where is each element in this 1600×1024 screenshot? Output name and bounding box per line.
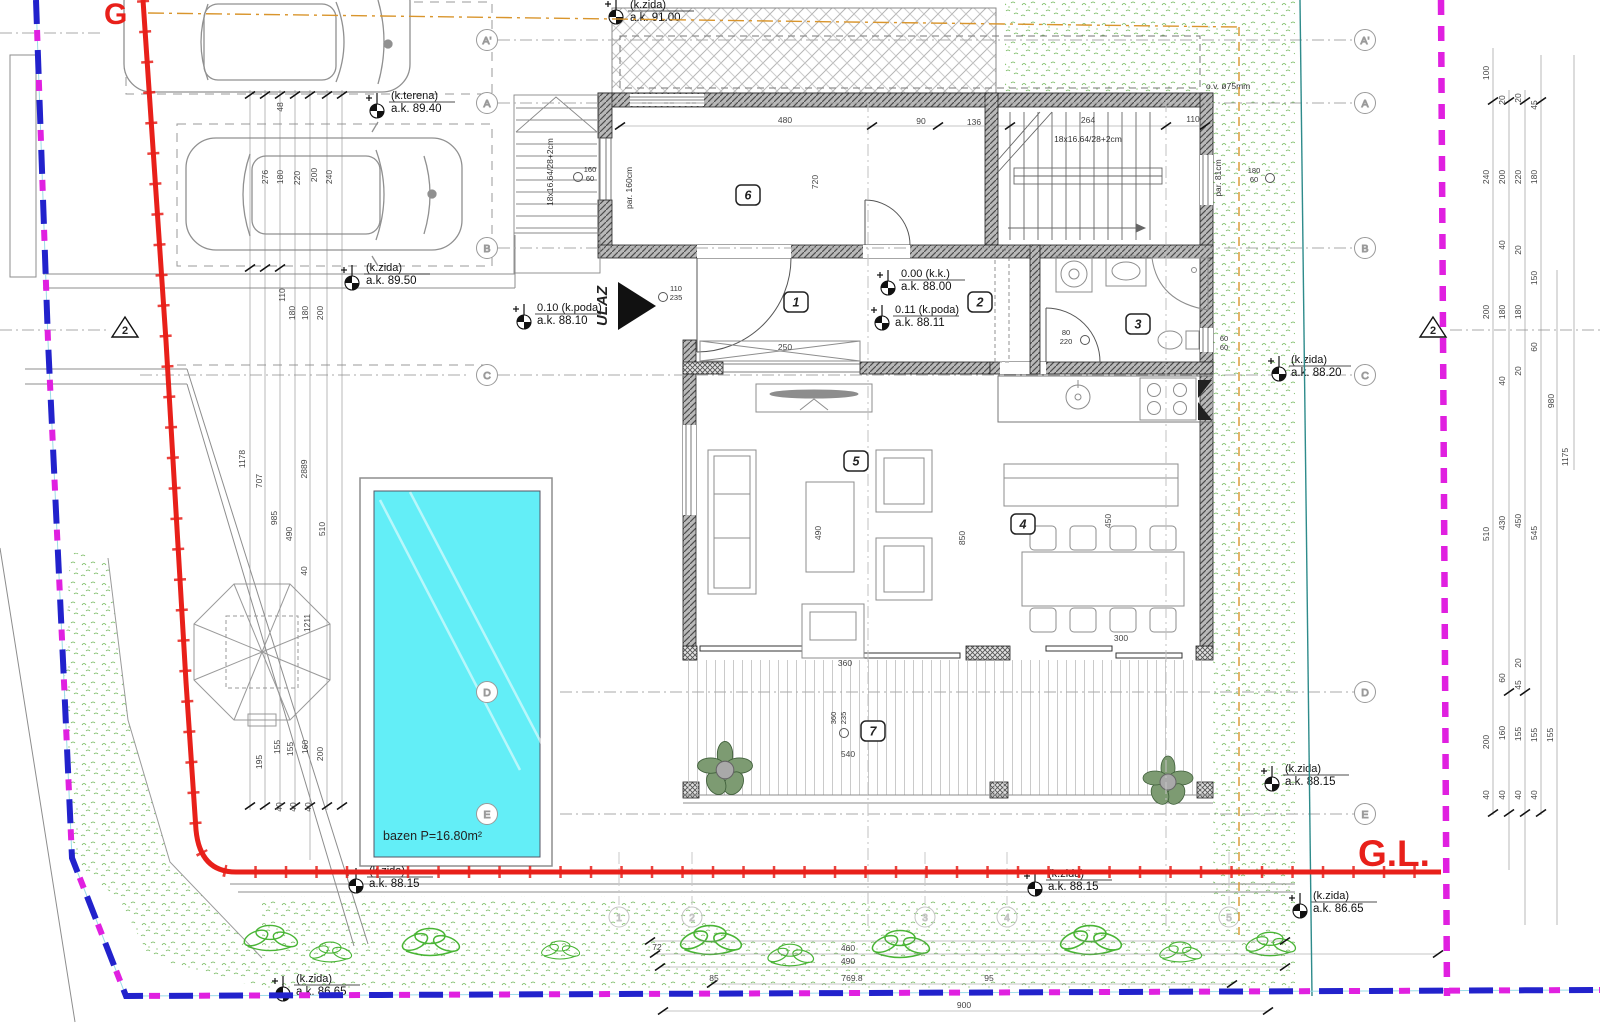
dim: 1175: [1560, 448, 1570, 467]
dim: 40: [288, 802, 298, 812]
room-number: 6: [745, 189, 753, 203]
grid-letter: A': [482, 35, 491, 47]
dim: 480: [778, 115, 792, 125]
opening-size: 360: [829, 712, 838, 725]
dim: 40: [303, 802, 313, 812]
dim: 72: [652, 942, 662, 952]
dim: 160: [300, 740, 310, 754]
room-number: 2: [976, 296, 984, 310]
dim: 40: [274, 802, 284, 812]
dim: 155: [1529, 728, 1539, 742]
dim: 20: [1513, 245, 1523, 255]
dim: 769.8: [841, 973, 863, 983]
dim: 276: [260, 170, 270, 184]
room-number: 4: [1019, 518, 1027, 532]
stairs-note: 18x16.64/28+2cm: [545, 138, 555, 206]
dim: 45: [1529, 100, 1539, 110]
opening-size: 60: [1250, 175, 1258, 184]
dim: 20: [1513, 366, 1523, 376]
opening-size: 180: [1248, 166, 1261, 175]
g-label: G: [104, 0, 127, 31]
dim: 2889: [299, 459, 309, 478]
dim: 490: [841, 956, 855, 966]
opening-size: 110: [670, 284, 682, 293]
dim: 155: [272, 740, 282, 754]
stairs-note: 18x16.64/28+2cm: [1054, 134, 1122, 144]
grid-letter: E: [483, 809, 490, 821]
dim: 490: [813, 526, 823, 540]
grid-bubbles-right: A' A B C D E: [1355, 30, 1376, 825]
grid-number: 1: [616, 913, 622, 924]
marker-value: a.k. 88.00: [901, 281, 952, 293]
dim: 220: [1513, 170, 1523, 184]
dim: 195: [254, 755, 264, 769]
dim: 100: [1481, 66, 1491, 80]
dim: 1211: [302, 614, 312, 633]
dim: 200: [1481, 305, 1491, 319]
dim: 40: [1481, 790, 1491, 800]
section-label: 2: [1430, 325, 1436, 337]
dim: 250: [778, 342, 792, 352]
dim: 90: [916, 116, 926, 126]
marker-value: a.k. 89.40: [391, 103, 442, 115]
car-bottom: [186, 122, 462, 266]
opening-size: 235: [670, 293, 683, 302]
grid-letter: E: [1361, 809, 1368, 821]
opening-size: 80: [1062, 328, 1070, 337]
dim: 20: [1513, 93, 1523, 103]
dim: 20: [1513, 658, 1523, 668]
dim: 180: [1513, 305, 1523, 319]
marker-label: (k.zida): [1285, 763, 1321, 775]
dim: 200: [315, 306, 325, 320]
marker-value: a.k. 89.50: [366, 275, 417, 287]
opening-size: 220: [1060, 337, 1073, 346]
opening-size: 60: [1220, 343, 1228, 352]
grid-number: 4: [1004, 913, 1010, 924]
opening-size: 60: [1220, 334, 1228, 343]
dim: 220: [292, 171, 302, 185]
dim: 200: [315, 747, 325, 761]
room-number: 3: [1135, 318, 1142, 332]
marker-value: a.k. 88.11: [895, 317, 945, 329]
dim: 1178: [237, 450, 247, 469]
dim: 136: [967, 117, 981, 127]
dim: 900: [957, 1000, 971, 1010]
dim: 40: [1497, 240, 1507, 250]
dim: 155: [1545, 728, 1555, 742]
dim: 264: [1081, 115, 1095, 125]
dim: 450: [1103, 514, 1113, 528]
gl-label: G.L.: [1358, 833, 1430, 874]
boundary-magenta-right: [1441, 0, 1447, 996]
grid-letter: D: [483, 687, 491, 699]
dim: 95: [984, 973, 994, 983]
marker-value: a.k. 88.20: [1291, 367, 1342, 379]
marker-label: (k.terena): [391, 90, 438, 102]
room-number: 5: [853, 455, 861, 469]
dimension-numbers-right: 100 20 20 45 240 200 220 180 40 20 150 2…: [1481, 66, 1570, 800]
dim: 40: [1513, 790, 1523, 800]
opening-size: 60: [586, 174, 594, 183]
dim: 40: [299, 566, 309, 576]
dim: 240: [1481, 170, 1491, 184]
dim: 300: [1114, 633, 1128, 643]
dim: 150: [1529, 271, 1539, 285]
marker-label: (k.zida): [366, 262, 402, 274]
dim: 60: [1529, 342, 1539, 352]
dim: 200: [1481, 735, 1491, 749]
marker-label: (k.zida): [1291, 354, 1327, 366]
dim: 180: [287, 306, 297, 320]
gazebo: [194, 584, 330, 726]
dim: 20: [1497, 95, 1507, 105]
utility-teal-line: [1300, 0, 1312, 996]
dim: 430: [1497, 516, 1507, 530]
marker-value: a.k. 88.15: [1048, 881, 1099, 893]
marker-value: a.k. 88.10: [537, 315, 588, 327]
parapet-note: par. 160cm: [624, 167, 634, 209]
marker-label: (k.zida): [1313, 890, 1349, 902]
pool: bazen P=16.80m²: [360, 478, 552, 866]
dim: 180: [275, 170, 285, 184]
marker-value: a.k. 91.00: [630, 12, 681, 24]
drain-note: o.v. ø75mm: [1206, 81, 1250, 91]
dim: 450: [1513, 514, 1523, 528]
dim: 460: [841, 943, 855, 953]
dim: 360: [838, 658, 852, 668]
room-number: 7: [870, 725, 878, 739]
marker-value: a.k. 88.15: [1285, 776, 1336, 788]
dim: 850: [957, 531, 967, 545]
grid-letter: B: [483, 243, 490, 255]
dim: 490: [284, 527, 294, 541]
opening-size: 160: [584, 165, 597, 174]
pool-label: bazen P=16.80m²: [383, 829, 482, 843]
dim: 240: [324, 170, 334, 184]
marker-value: a.k. 88.15: [369, 878, 420, 890]
opening-size: 235: [839, 712, 848, 725]
dim: 720: [810, 175, 820, 189]
grid-letter: A: [1361, 98, 1368, 110]
dim: 40: [1497, 790, 1507, 800]
dim: 200: [309, 168, 319, 182]
exterior-stairs: [514, 95, 600, 273]
grid-letter: A': [1360, 35, 1369, 47]
site-plan: bazen P=16.80m² A' A B C D E A' A B C D …: [0, 0, 1600, 1024]
dim: 110: [277, 288, 287, 302]
dim: 48: [275, 102, 285, 112]
grid-letter: A: [483, 98, 490, 110]
marker-label: 0.10 (k.poda): [537, 302, 602, 314]
marker-label: (k.zida): [296, 973, 332, 985]
grid-number: 5: [1226, 913, 1232, 924]
car-top: [124, 0, 410, 92]
dim: 180: [1529, 170, 1539, 184]
marker-value: a.k. 86.65: [1313, 903, 1364, 915]
dim: 707: [254, 474, 264, 488]
dim: 540: [841, 749, 855, 759]
dim: 155: [285, 742, 295, 756]
dim: 45: [1513, 680, 1523, 690]
dim: 510: [317, 522, 327, 536]
grid-number: 2: [689, 913, 695, 924]
dim: 40: [1497, 376, 1507, 386]
marker-label: 0.00 (k.k.): [901, 268, 950, 280]
dim: 110: [1186, 114, 1200, 124]
dim: 510: [1481, 527, 1491, 541]
dim: 180: [300, 306, 310, 320]
dim: 545: [1529, 526, 1539, 540]
grid-letter: B: [1361, 243, 1368, 255]
dim: 160: [1497, 726, 1507, 740]
dim: 980: [1546, 394, 1556, 408]
dim: 40: [1529, 790, 1539, 800]
parapet-note: par. 81cm: [1213, 159, 1223, 196]
dim: 60: [1497, 673, 1507, 683]
room-number: 1: [793, 296, 800, 310]
grid-letter: C: [483, 370, 491, 382]
marker-label: 0.11 (k.poda): [895, 304, 959, 316]
dim: 200: [1497, 170, 1507, 184]
section-label: 2: [122, 325, 128, 337]
grid-letter: D: [1361, 687, 1369, 699]
site-plan-drawing: bazen P=16.80m² A' A B C D E A' A B C D …: [0, 0, 1600, 1024]
dim: 180: [1497, 305, 1507, 319]
dim: 85: [709, 973, 719, 983]
terrace-deck: [683, 660, 1213, 803]
dim: 155: [1513, 727, 1523, 741]
marker-label: (k.zida): [630, 0, 666, 11]
grid-number: 3: [922, 913, 928, 924]
dim: 985: [269, 511, 279, 525]
grid-letter: C: [1361, 370, 1369, 382]
